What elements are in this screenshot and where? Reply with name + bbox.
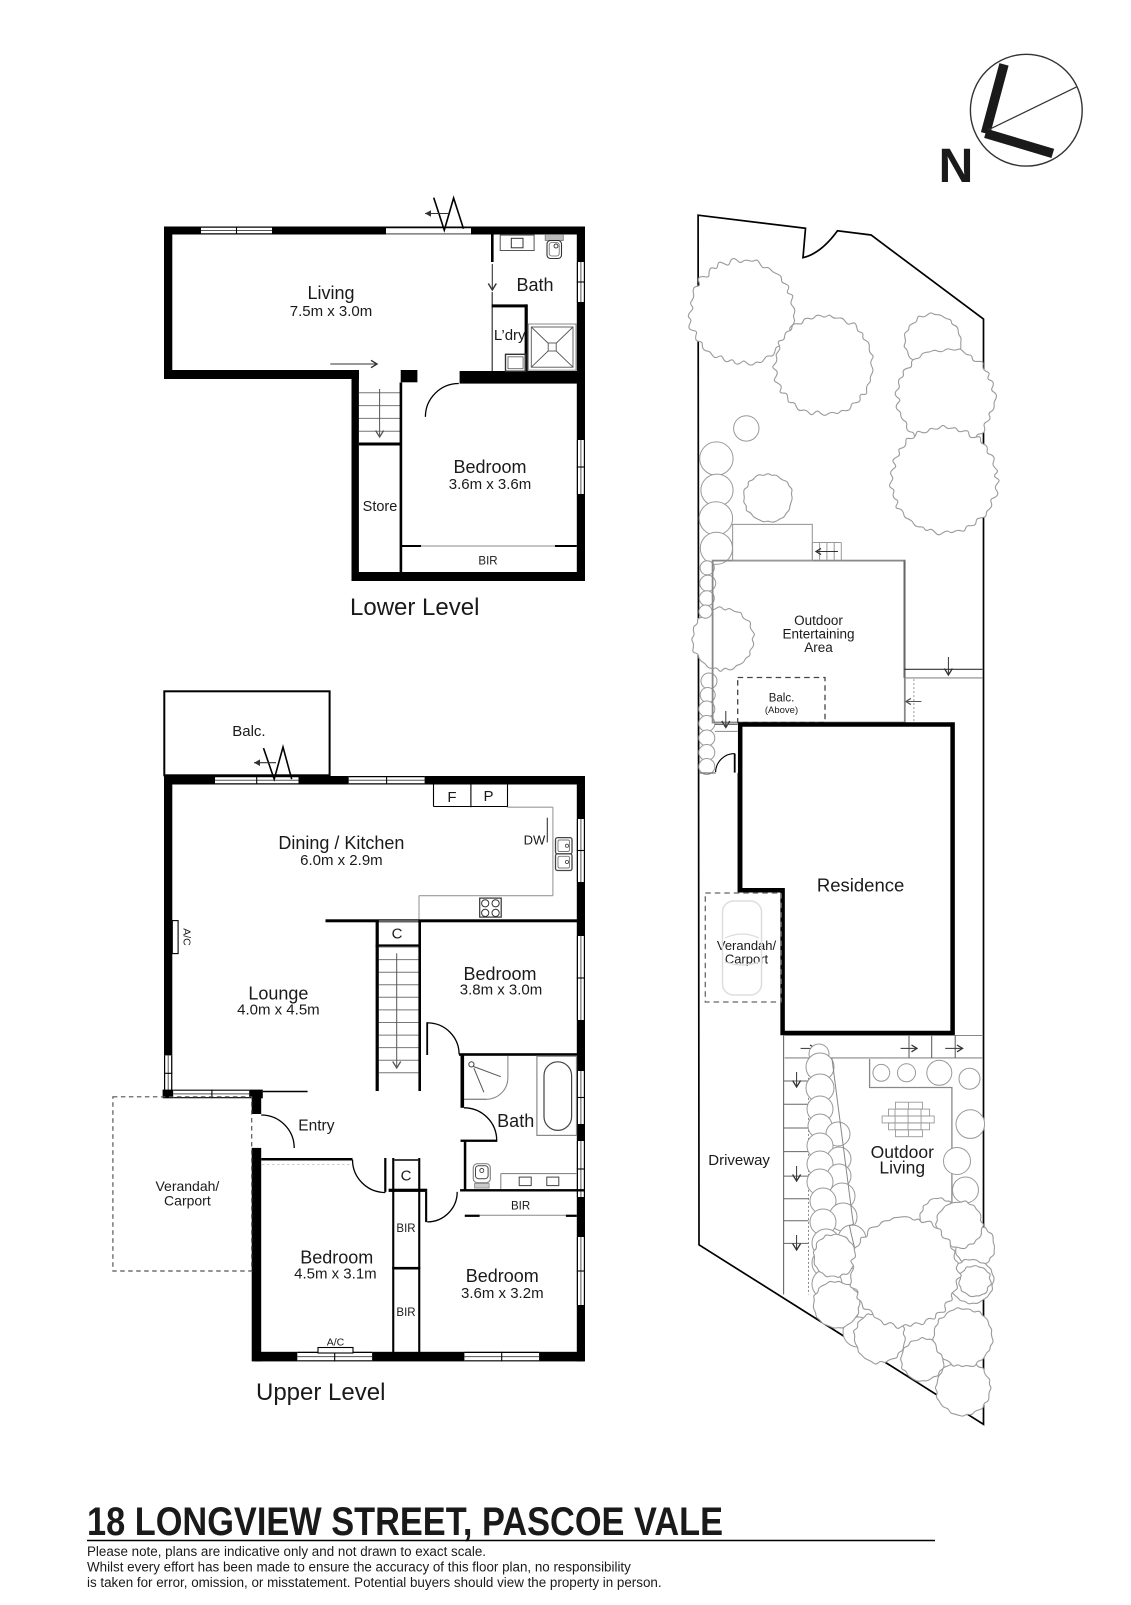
svg-text:3.8m x 3.0m: 3.8m x 3.0m — [460, 982, 543, 999]
svg-text:A/C: A/C — [327, 1337, 345, 1349]
svg-text:Driveway: Driveway — [708, 1152, 770, 1169]
svg-text:Area: Area — [804, 640, 833, 655]
svg-text:BIR: BIR — [511, 1200, 530, 1212]
svg-text:Upper Level: Upper Level — [256, 1379, 385, 1406]
svg-text:Balc.: Balc. — [232, 723, 265, 740]
svg-text:P: P — [483, 788, 493, 805]
svg-text:is taken for error, omission,: is taken for error, omission, or misstat… — [87, 1575, 662, 1590]
svg-text:BIR: BIR — [478, 556, 497, 568]
svg-text:Residence: Residence — [817, 875, 904, 896]
svg-text:N: N — [939, 140, 974, 193]
svg-text:Whilst every effort has been m: Whilst every effort has been made to ens… — [87, 1560, 631, 1575]
svg-text:3.6m x 3.6m: 3.6m x 3.6m — [449, 476, 532, 493]
svg-text:Bedroom: Bedroom — [300, 1248, 373, 1268]
svg-text:C: C — [392, 926, 403, 943]
svg-text:Bedroom: Bedroom — [466, 1266, 539, 1286]
svg-text:4.5m x 3.1m: 4.5m x 3.1m — [294, 1266, 377, 1283]
svg-text:Bath: Bath — [497, 1111, 534, 1131]
svg-text:Living: Living — [307, 283, 354, 303]
svg-text:3.6m x 3.2m: 3.6m x 3.2m — [461, 1285, 544, 1302]
svg-text:4.0m x 4.5m: 4.0m x 4.5m — [237, 1002, 320, 1019]
svg-text:(Above): (Above) — [765, 705, 798, 716]
svg-text:Bedroom: Bedroom — [453, 457, 526, 477]
svg-text:C: C — [401, 1168, 412, 1185]
svg-text:Balc.: Balc. — [769, 693, 795, 705]
svg-text:F: F — [447, 789, 456, 806]
svg-text:Store: Store — [363, 499, 398, 515]
svg-text:BIR: BIR — [396, 1307, 415, 1319]
svg-text:Carport: Carport — [164, 1193, 211, 1209]
svg-text:18 LONGVIEW STREET, PASCOE VAL: 18 LONGVIEW STREET, PASCOE VALE — [87, 1500, 723, 1544]
svg-text:Living: Living — [879, 1158, 925, 1178]
svg-text:Please note, plans are indicat: Please note, plans are indicative only a… — [87, 1544, 486, 1559]
svg-text:BIR: BIR — [396, 1223, 415, 1235]
svg-text:Lounge: Lounge — [248, 984, 308, 1004]
svg-text:7.5m x 3.0m: 7.5m x 3.0m — [290, 303, 373, 320]
svg-text:DW: DW — [524, 833, 546, 848]
svg-text:L’dry: L’dry — [494, 327, 526, 344]
svg-text:Lower Level: Lower Level — [350, 594, 479, 621]
svg-text:Bath: Bath — [516, 275, 553, 295]
svg-text:Entry: Entry — [298, 1118, 334, 1135]
svg-text:Dining / Kitchen: Dining / Kitchen — [278, 833, 404, 853]
svg-text:A/C: A/C — [181, 928, 193, 946]
svg-text:6.0m x 2.9m: 6.0m x 2.9m — [300, 852, 383, 869]
